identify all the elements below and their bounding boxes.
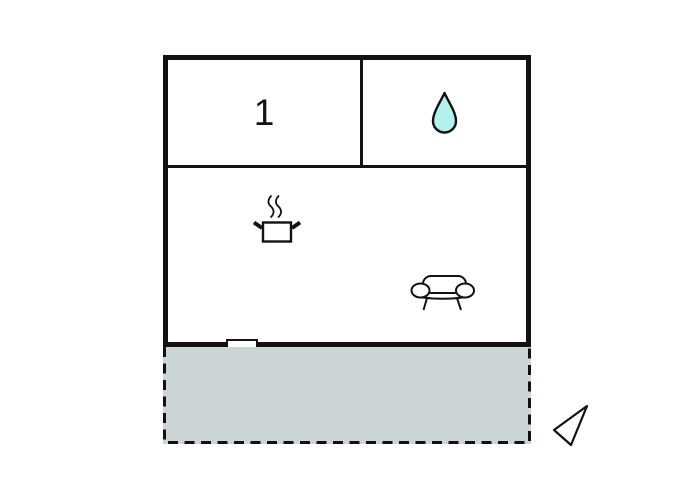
sofa-seat (419, 297, 466, 299)
terrace-area (163, 347, 531, 444)
bathroom (363, 60, 526, 165)
north-arrow-shape (554, 406, 587, 445)
cooking-pot-icon (252, 193, 302, 243)
water-drop-shape (433, 93, 456, 133)
steam-line (276, 196, 281, 218)
water-drop-icon (431, 91, 458, 135)
room-1: 1 (168, 60, 360, 165)
floorplan-canvas: 1 (0, 0, 700, 500)
pot-body (263, 223, 291, 242)
sofa-leg-right (457, 298, 461, 310)
sofa-leg-left (424, 298, 428, 310)
living-area (168, 168, 526, 342)
pot-handle-left (254, 223, 262, 229)
terrace-border-path (165, 347, 530, 443)
building-outline: 1 (163, 55, 531, 347)
sofa-armrest-left (412, 284, 430, 298)
north-arrow-icon (550, 402, 592, 450)
steam-line (268, 196, 273, 218)
room-1-label: 1 (254, 94, 275, 131)
pot-handle-right (292, 223, 300, 229)
terrace-dashed-border (163, 347, 531, 444)
sofa-armrest-right (456, 284, 474, 298)
sofa-icon (410, 272, 476, 312)
